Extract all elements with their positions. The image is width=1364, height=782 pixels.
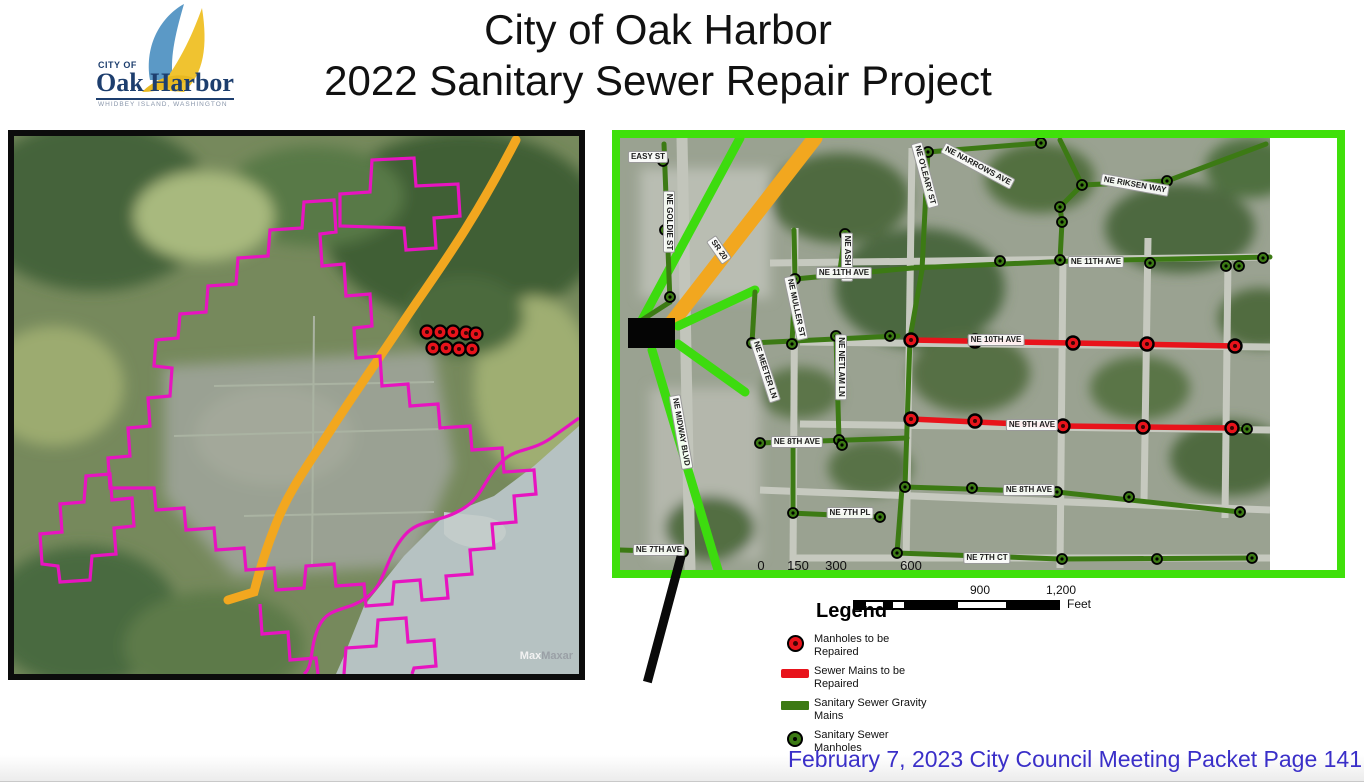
street-label: NE 7TH CT (963, 552, 1010, 564)
street-label: EASY ST (628, 151, 668, 163)
scale-number: 300 (825, 559, 847, 573)
scale-number: 150 (787, 559, 809, 573)
legend-item-label: Sanitary Sewer Gravity Mains (814, 697, 932, 722)
street-label: NE 7TH PL (827, 507, 874, 519)
legend-item-label: Sewer Mains to be Repaired (814, 665, 932, 690)
main-repair-icon (781, 669, 809, 678)
street-label: NE 7TH AVE (633, 544, 685, 556)
imagery-attribution: MaxMaxar (520, 650, 573, 662)
legend-item: Sewer Mains to be Repaired (780, 665, 980, 690)
detail-map: EASY STNE GOLDIE STSR 20NE O'LEARY STNE … (612, 130, 1345, 578)
street-label: NE 10TH AVE (968, 334, 1025, 346)
blackout-box (628, 318, 675, 348)
scale-number: 600 (900, 559, 922, 573)
street-label: NE 11TH AVE (1068, 256, 1124, 268)
title-line-2: 2022 Sanitary Sewer Repair Project (0, 56, 1316, 106)
packet-page-footer: February 7, 2023 City Council Meeting Pa… (788, 746, 1362, 773)
page-title: City of Oak Harbor 2022 Sanitary Sewer R… (0, 4, 1364, 106)
scalebar-label-900: 900 (970, 583, 990, 597)
title-line-1: City of Oak Harbor (0, 4, 1316, 56)
legend: Legend Manholes to be RepairedSewer Main… (780, 600, 980, 761)
legend-item-label: Manholes to be Repaired (814, 633, 932, 658)
scalebar-label-1200: 1,200 (1046, 583, 1076, 597)
street-label: NE 11TH AVE (816, 267, 872, 279)
legend-item: Manholes to be Repaired (780, 633, 980, 658)
legend-item: Sanitary Sewer Gravity Mains (780, 697, 980, 722)
street-label: NE 9TH AVE (1006, 419, 1058, 431)
street-label: NE NETLAM LN (835, 334, 847, 400)
sewer-network-overlay (620, 138, 1337, 570)
overview-map: MaxMaxar (8, 130, 585, 680)
legend-items: Manholes to be RepairedSewer Mains to be… (780, 633, 980, 754)
street-label: NE 8TH AVE (1003, 484, 1055, 496)
scale-number: 0 (757, 559, 764, 573)
street-label: NE 8TH AVE (771, 436, 823, 448)
scalebar-unit: Feet (1067, 597, 1091, 611)
overview-map-image (14, 136, 579, 674)
gravity-main-icon (781, 701, 809, 710)
manhole-repair-icon (787, 635, 804, 652)
street-label: NE GOLDIE ST (663, 191, 675, 253)
manhole-icon (787, 731, 803, 747)
legend-title: Legend (816, 600, 980, 623)
